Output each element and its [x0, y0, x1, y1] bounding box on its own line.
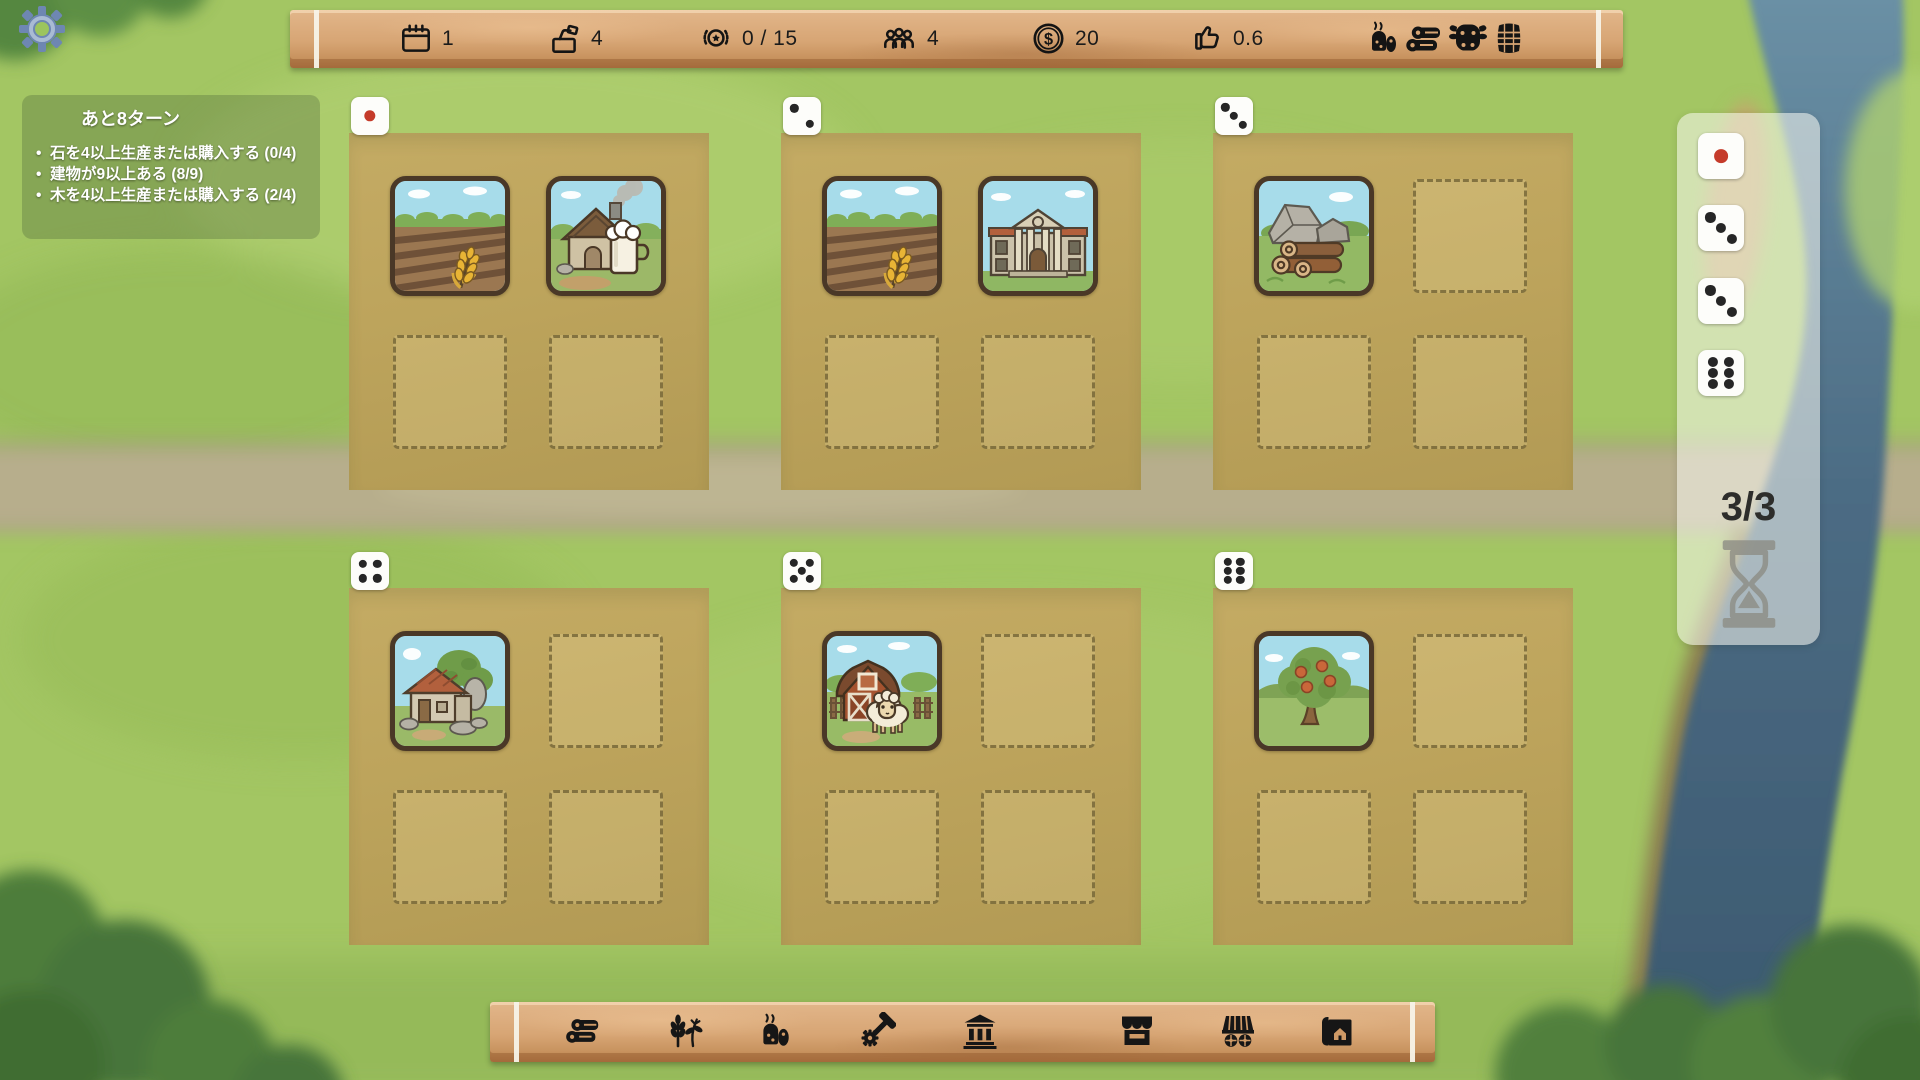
barrel-icon — [1492, 20, 1526, 56]
reroll-button[interactable] — [1716, 538, 1782, 630]
bar-end-stripe — [514, 1002, 519, 1062]
empty-card-slot[interactable] — [1257, 790, 1371, 904]
crops-icon — [666, 1012, 704, 1050]
board-die-badge — [1215, 97, 1253, 135]
stat-turn: 1 — [398, 21, 454, 57]
population-value: 4 — [927, 27, 939, 51]
tray-die-1[interactable] — [1698, 133, 1744, 179]
board-die-badge — [351, 552, 389, 590]
empty-card-slot[interactable] — [549, 634, 663, 748]
svg-text:$: $ — [1044, 30, 1053, 48]
resource-icon-group — [1366, 20, 1526, 56]
empty-card-slot[interactable] — [1413, 335, 1527, 449]
toolbar-crops-button[interactable] — [666, 1012, 704, 1050]
card-apple-tree[interactable] — [1254, 631, 1374, 751]
medal-icon — [698, 21, 734, 57]
wagon-icon — [1219, 1012, 1257, 1050]
stat-population: 4 — [880, 21, 939, 57]
popularity-value: 0.6 — [1233, 27, 1264, 51]
toolbar-bank-button[interactable] — [961, 1012, 999, 1050]
objectives-panel: あと8ターン •石を4以上生産または購入する (0/4) •建物が9以上ある (… — [22, 95, 320, 239]
objective-text: 木を4以上生産または購入する (2/4) — [50, 185, 296, 206]
empty-card-slot[interactable] — [825, 335, 939, 449]
bar-end-stripe — [1596, 10, 1601, 68]
empty-card-slot[interactable] — [981, 335, 1095, 449]
card-town-hall[interactable] — [978, 176, 1098, 296]
empty-card-slot[interactable] — [981, 634, 1095, 748]
empty-card-slot[interactable] — [1413, 790, 1527, 904]
board-zone-4 — [349, 588, 709, 945]
bar-end-stripe — [314, 10, 319, 68]
empty-card-slot[interactable] — [825, 790, 939, 904]
objective-text: 建物が9以上ある (8/9) — [50, 164, 203, 185]
empty-card-slot[interactable] — [393, 335, 507, 449]
board-zone-5 — [781, 588, 1141, 945]
empty-card-slot[interactable] — [393, 790, 507, 904]
coin-icon: $ — [1030, 20, 1067, 57]
card-brewery[interactable] — [546, 176, 666, 296]
toolbar-logs-button[interactable] — [564, 1012, 602, 1050]
stat-score: 0 / 15 — [698, 21, 798, 57]
settings-button[interactable] — [18, 4, 66, 54]
bread-icon — [757, 1012, 793, 1050]
hourglass-icon — [1716, 538, 1782, 630]
board-die-badge — [783, 552, 821, 590]
board-zone-3 — [1213, 133, 1573, 490]
objective-item: •建物が9以上ある (8/9) — [36, 164, 306, 185]
bar-end-stripe — [1410, 1002, 1415, 1062]
tools-icon — [858, 1012, 896, 1050]
objective-item: •木を4以上生産または購入する (2/4) — [36, 185, 306, 206]
toolbar-bread-button[interactable] — [757, 1012, 795, 1050]
board-die-badge — [351, 97, 389, 135]
people-icon — [880, 21, 918, 57]
dice-tray-panel: 3/3 — [1677, 113, 1820, 645]
money-value: 20 — [1075, 27, 1099, 51]
empty-card-slot[interactable] — [1413, 179, 1527, 293]
board-die-badge — [1215, 552, 1253, 590]
card-sheep-barn[interactable] — [822, 631, 942, 751]
empty-card-slot[interactable] — [549, 335, 663, 449]
empty-card-slot[interactable] — [549, 790, 663, 904]
bank-icon — [961, 1012, 999, 1050]
card-wheat-field[interactable] — [390, 176, 510, 296]
game-screen: { "hud": { "stats": [ {"name": "turn", "… — [0, 0, 1920, 1080]
objective-item: •石を4以上生産または購入する (0/4) — [36, 143, 306, 164]
blueprint-icon — [1318, 1012, 1356, 1050]
tray-die-4[interactable] — [1698, 350, 1744, 396]
stat-popularity: 0.6 — [1190, 21, 1264, 57]
bread-icon — [1366, 20, 1400, 56]
empty-card-slot[interactable] — [981, 790, 1095, 904]
board-zone-2 — [781, 133, 1141, 490]
workers-value: 4 — [591, 27, 603, 51]
stat-money: $ 20 — [1030, 20, 1099, 57]
logs-icon — [1404, 20, 1444, 56]
score-value: 0 / 15 — [742, 27, 798, 51]
card-stone-house[interactable] — [390, 631, 510, 751]
toolbar-wagon-button[interactable] — [1219, 1012, 1257, 1050]
card-stone-and-logs[interactable] — [1254, 176, 1374, 296]
toolbar-market-stall-button[interactable] — [1118, 1012, 1156, 1050]
toolbar-blueprint-button[interactable] — [1318, 1012, 1356, 1050]
card-wheat-field[interactable] — [822, 176, 942, 296]
craft-box-icon — [546, 21, 582, 57]
tray-die-2[interactable] — [1698, 205, 1744, 251]
board-zone-1 — [349, 133, 709, 490]
objective-text: 石を4以上生産または購入する (0/4) — [50, 143, 296, 164]
thumbs-up-icon — [1190, 21, 1226, 57]
market-stall-icon — [1118, 1012, 1156, 1050]
empty-card-slot[interactable] — [1413, 634, 1527, 748]
board-die-badge — [783, 97, 821, 135]
rolls-counter: 3/3 — [1677, 485, 1820, 530]
tray-die-3[interactable] — [1698, 278, 1744, 324]
objectives-title: あと8ターン — [36, 105, 225, 131]
gear-icon — [18, 4, 66, 54]
toolbar-tools-button[interactable] — [858, 1012, 896, 1050]
turn-value: 1 — [442, 27, 454, 51]
stat-workers: 4 — [546, 21, 603, 57]
logs-icon — [564, 1012, 602, 1048]
empty-card-slot[interactable] — [1257, 335, 1371, 449]
cow-icon — [1448, 20, 1488, 56]
calendar-icon — [398, 21, 434, 57]
board-zone-6 — [1213, 588, 1573, 945]
